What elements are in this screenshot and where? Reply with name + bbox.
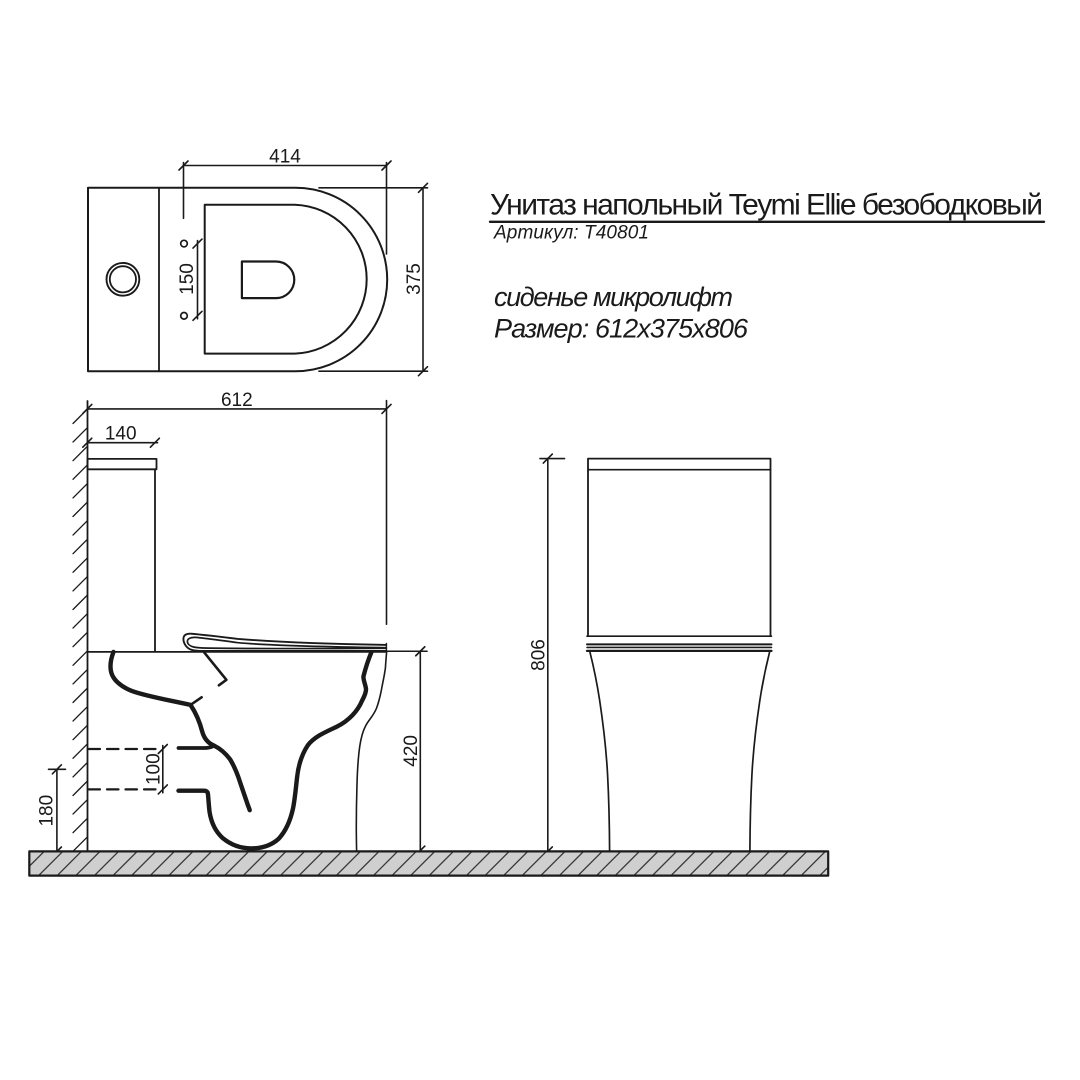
svg-text:806: 806: [529, 639, 550, 671]
svg-text:сиденье микролифт: сиденье микролифт: [494, 282, 733, 312]
svg-text:375: 375: [404, 263, 425, 295]
svg-text:414: 414: [269, 146, 301, 167]
svg-text:100: 100: [143, 753, 164, 785]
svg-text:150: 150: [177, 263, 198, 295]
svg-text:140: 140: [105, 423, 137, 444]
svg-text:612: 612: [221, 390, 253, 411]
svg-text:Унитаз напольный Teymi Ellie б: Унитаз напольный Teymi Ellie безободковы…: [490, 189, 1043, 222]
svg-text:Размер: 612x375x806: Размер: 612x375x806: [494, 314, 749, 344]
svg-text:180: 180: [37, 795, 58, 827]
svg-text:Артикул: T40801: Артикул: T40801: [493, 223, 649, 244]
svg-text:420: 420: [401, 735, 422, 767]
